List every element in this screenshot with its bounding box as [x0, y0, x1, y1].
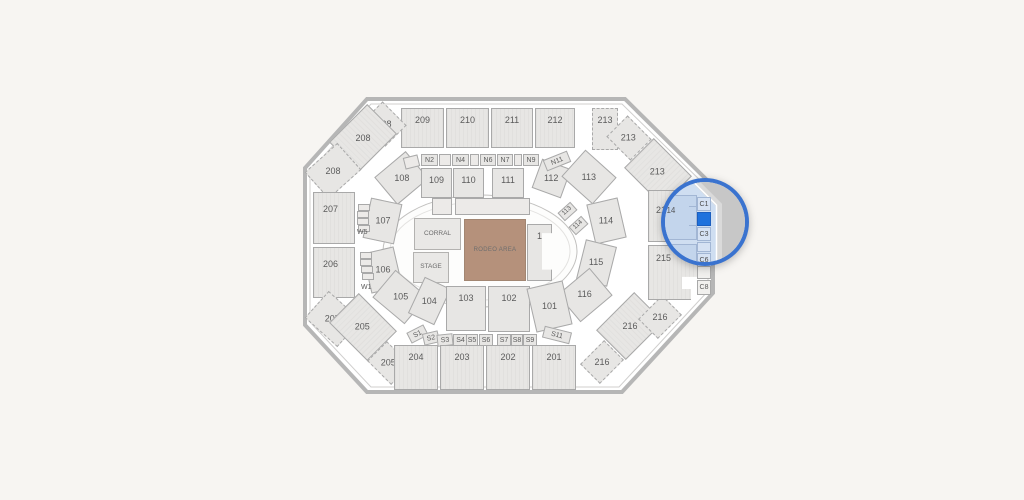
box-label: S4 [456, 337, 465, 344]
section-label: 207 [323, 205, 338, 214]
section-label: 102 [501, 294, 516, 303]
selected-section-highlight[interactable] [697, 212, 711, 226]
section-c8[interactable]: C8 [697, 280, 711, 295]
box-n4[interactable]: N4 [452, 154, 469, 166]
magnifier-lens[interactable]: 214 215 C1 C3 C6 [661, 178, 749, 266]
section-label: 206 [323, 260, 338, 269]
section-label: 103 [458, 294, 473, 303]
section-label: 107 [375, 217, 390, 226]
section-label: 108 [394, 174, 409, 183]
section-label: CORRAL [424, 231, 451, 238]
box-label: S11 [550, 330, 563, 340]
box-label: N4 [456, 157, 465, 164]
lens-section-214-notch [689, 206, 697, 226]
box-n7[interactable]: N7 [497, 154, 513, 166]
section-label: 112 [544, 174, 558, 183]
floor-box-blank [455, 198, 530, 215]
box-label: S3 [440, 336, 449, 344]
box-label: N9 [527, 157, 536, 164]
section-label: C6 [700, 257, 709, 264]
section-212[interactable]: 212 [535, 108, 575, 148]
box-label: N11 [550, 155, 564, 166]
section-label: 111 [501, 176, 515, 185]
section-label: 1 [537, 232, 542, 241]
section-label: 202 [500, 353, 515, 362]
section-c6[interactable]: C6 [697, 253, 711, 266]
section-111[interactable]: 111 [492, 168, 524, 198]
rodeo-area: RODEO AREA [464, 219, 526, 281]
section-206[interactable]: 206 [313, 247, 355, 298]
section-label: 110 [461, 176, 475, 185]
box-label: S9 [526, 337, 535, 344]
section-label: 114 [599, 216, 613, 225]
section-label: 216 [594, 358, 609, 367]
floor-box-blank [432, 198, 452, 215]
section-210[interactable]: 210 [446, 108, 489, 148]
west-box-blank [358, 204, 370, 211]
section-label: 210 [460, 116, 475, 125]
section-label: 113 [582, 172, 596, 181]
section-label: 115 [589, 258, 603, 267]
section-label: 109 [429, 176, 444, 185]
section-201[interactable]: 201 [532, 345, 576, 390]
box-label: S2 [426, 334, 436, 343]
section-label: 204 [408, 353, 423, 362]
section-c1[interactable]: C1 [697, 197, 711, 211]
section-label: 214 [662, 206, 675, 215]
section-211[interactable]: 211 [491, 108, 533, 148]
west-box-blank [362, 273, 374, 280]
section-label: 213 [650, 168, 665, 177]
box-w1[interactable]: W1 [361, 284, 372, 291]
chute-box-blank [697, 266, 711, 279]
chute-box-blank [697, 242, 711, 252]
section-label: 101 [542, 302, 557, 311]
north-box-blank [514, 154, 522, 166]
box-n2[interactable]: N2 [421, 154, 438, 166]
section-label: 208 [355, 134, 370, 143]
section-label: 205 [355, 323, 370, 332]
west-box-blank [357, 218, 369, 225]
section-209[interactable]: 209 [401, 108, 444, 148]
section-label: C3 [700, 231, 709, 238]
box-n6[interactable]: N6 [480, 154, 496, 166]
box-label: S8 [513, 337, 522, 344]
section-label: 213 [621, 134, 636, 143]
section-label: 203 [454, 353, 469, 362]
west-box-blank [360, 259, 372, 266]
section-label: 201 [546, 353, 561, 362]
section-label: 116 [578, 290, 592, 299]
section-label: 213 [597, 116, 612, 125]
box-label: N7 [501, 157, 510, 164]
west-box-blank [360, 252, 372, 259]
lens-section-215-label: 215 [665, 253, 678, 261]
section-label: 215 [665, 252, 678, 261]
section-label: 105 [392, 293, 407, 302]
box-n9[interactable]: N9 [523, 154, 539, 166]
section-207[interactable]: 207 [313, 192, 355, 244]
section-label: STAGE [420, 264, 442, 271]
box-label: W5 [357, 229, 368, 236]
west-box-blank [357, 211, 369, 218]
section-110[interactable]: 110 [453, 168, 484, 198]
section-label: C1 [700, 201, 709, 208]
section-label: 209 [415, 116, 430, 125]
box-label: S6 [482, 337, 491, 344]
section-label: RODEO AREA [474, 247, 517, 253]
section-202[interactable]: 202 [486, 345, 530, 390]
arena-seating-map: CORRAL STAGE RODEO AREA 1 108 109 110 11… [0, 0, 1024, 500]
north-box-blank [439, 154, 451, 166]
section-label: 208 [325, 167, 340, 176]
box-label: N6 [484, 157, 493, 164]
box-w5[interactable]: W5 [357, 229, 368, 236]
section-109[interactable]: 109 [421, 168, 452, 198]
north-box-blank [470, 154, 479, 166]
section-label: 216 [652, 313, 667, 322]
section-c3[interactable]: C3 [697, 227, 711, 241]
section-label: 104 [422, 297, 437, 306]
box-label: S7 [500, 337, 509, 344]
box-label: N2 [425, 157, 434, 164]
box-label: S5 [468, 337, 477, 344]
section-204[interactable]: 204 [394, 345, 438, 390]
section-102[interactable]: 102 [488, 286, 530, 332]
section-label: C8 [700, 284, 709, 291]
west-box-blank [361, 266, 373, 273]
section-label: 211 [505, 116, 519, 125]
section-203[interactable]: 203 [440, 345, 484, 390]
section-label: 212 [547, 116, 562, 125]
box-label: W1 [361, 284, 372, 291]
section-stage[interactable]: STAGE [413, 252, 449, 283]
section-103[interactable]: 103 [446, 286, 486, 331]
section-corral[interactable]: CORRAL [414, 218, 461, 250]
lens-section-214-label: 214 [662, 207, 675, 215]
section-label: 216 [622, 322, 637, 331]
section-label: 106 [375, 266, 390, 275]
